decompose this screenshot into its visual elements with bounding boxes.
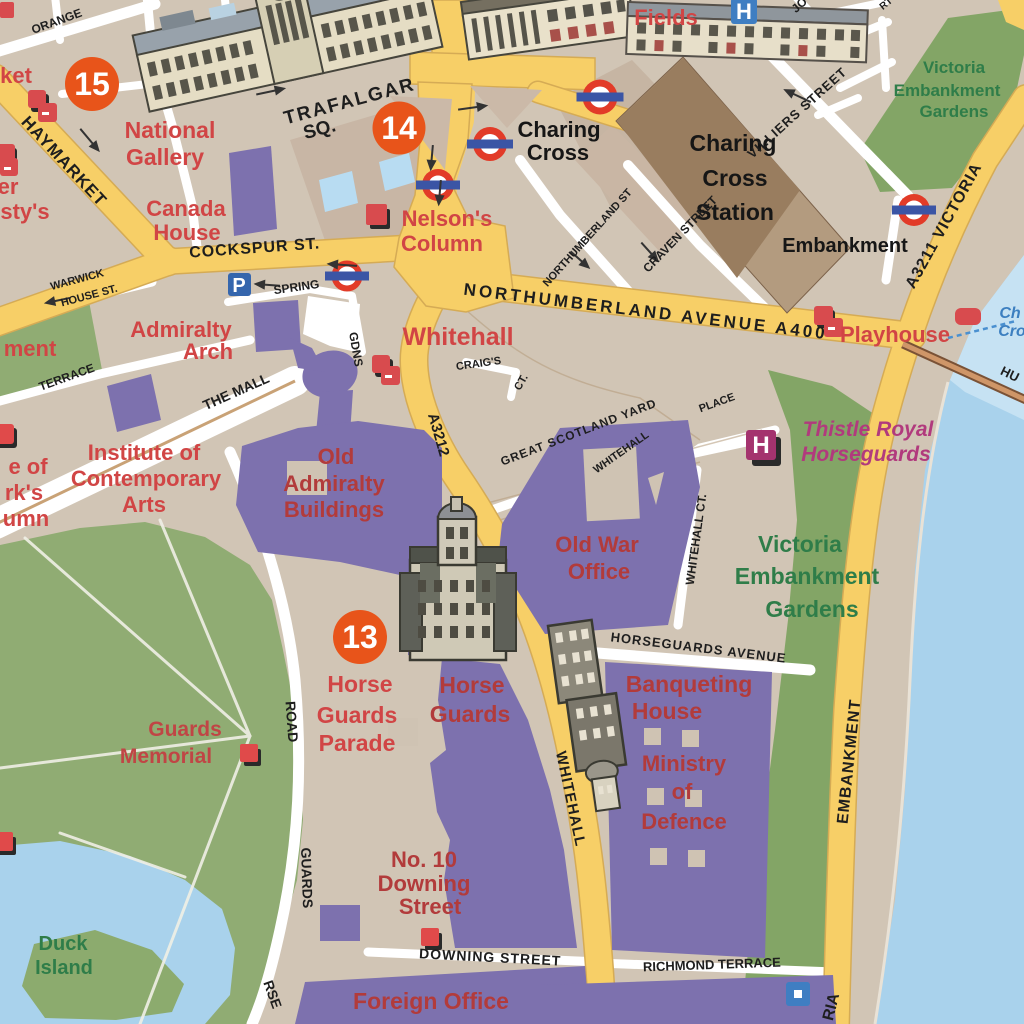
svg-text:Embankment: Embankment — [735, 563, 880, 589]
svg-text:Horse: Horse — [327, 671, 392, 697]
svg-text:Fields: Fields — [634, 5, 698, 30]
svg-text:Horseguards: Horseguards — [801, 443, 931, 466]
svg-text:Embankment: Embankment — [894, 81, 1001, 100]
svg-text:ket: ket — [0, 63, 32, 88]
svg-text:P: P — [232, 275, 245, 297]
svg-text:sty's: sty's — [0, 199, 49, 224]
svg-text:e of: e of — [8, 454, 48, 479]
svg-text:Street: Street — [399, 894, 462, 919]
svg-text:Column: Column — [401, 231, 483, 256]
svg-text:Playhouse: Playhouse — [840, 322, 950, 347]
svg-text:Guards: Guards — [148, 718, 222, 741]
svg-text:National: National — [125, 117, 216, 143]
svg-text:Buildings: Buildings — [284, 497, 384, 522]
svg-text:of: of — [672, 779, 693, 804]
svg-text:er: er — [0, 174, 19, 199]
svg-text:Horse: Horse — [439, 672, 504, 698]
svg-text:House: House — [632, 698, 702, 724]
svg-text:Nelson's: Nelson's — [402, 206, 493, 231]
svg-text:Gardens: Gardens — [920, 102, 989, 121]
svg-text:Old: Old — [318, 444, 355, 469]
svg-text:Guards: Guards — [430, 701, 511, 727]
svg-text:Guards: Guards — [317, 702, 398, 728]
svg-text:Contemporary: Contemporary — [71, 466, 222, 491]
svg-text:Cross: Cross — [527, 140, 589, 165]
svg-text:Institute of: Institute of — [88, 440, 201, 465]
svg-text:Island: Island — [35, 957, 93, 979]
svg-text:H: H — [752, 432, 769, 459]
svg-text:Canada: Canada — [146, 196, 226, 221]
svg-text:Victoria: Victoria — [923, 58, 986, 77]
svg-text:Thistle Royal: Thistle Royal — [803, 418, 935, 441]
svg-text:Ministry: Ministry — [642, 751, 727, 776]
svg-text:Memorial: Memorial — [120, 745, 212, 768]
svg-text:Office: Office — [568, 559, 630, 584]
svg-text:Duck: Duck — [39, 933, 89, 955]
svg-text:Admiralty: Admiralty — [283, 471, 385, 496]
svg-text:Foreign Office: Foreign Office — [353, 988, 509, 1014]
svg-text:Old War: Old War — [555, 532, 639, 557]
svg-text:Arts: Arts — [122, 492, 166, 517]
svg-text:Defence: Defence — [641, 809, 727, 834]
svg-text:Charing: Charing — [517, 117, 600, 142]
svg-text:House: House — [153, 220, 220, 245]
svg-text:13: 13 — [342, 619, 378, 655]
svg-text:Embankment: Embankment — [782, 235, 908, 257]
svg-text:No. 10: No. 10 — [391, 847, 457, 872]
svg-text:Banqueting: Banqueting — [626, 671, 753, 697]
svg-text:rk's: rk's — [5, 480, 43, 505]
svg-text:Cross: Cross — [702, 165, 767, 191]
svg-text:Victoria: Victoria — [758, 531, 842, 557]
svg-text:Arch: Arch — [183, 339, 233, 364]
svg-text:14: 14 — [381, 110, 417, 146]
svg-text:Ch: Ch — [999, 305, 1021, 322]
svg-text:Whitehall: Whitehall — [402, 323, 513, 351]
svg-text:Gardens: Gardens — [765, 596, 858, 622]
svg-text:ROAD: ROAD — [283, 701, 302, 743]
svg-text:Cro: Cro — [998, 323, 1024, 340]
svg-text:ment: ment — [4, 336, 57, 361]
svg-text:15: 15 — [74, 66, 110, 102]
svg-text:H: H — [736, 0, 752, 24]
svg-text:Parade: Parade — [319, 730, 396, 756]
svg-text:Downing: Downing — [378, 871, 471, 896]
svg-text:Gallery: Gallery — [126, 144, 204, 170]
svg-text:umn: umn — [3, 506, 49, 531]
svg-text:GUARDS: GUARDS — [298, 847, 316, 908]
